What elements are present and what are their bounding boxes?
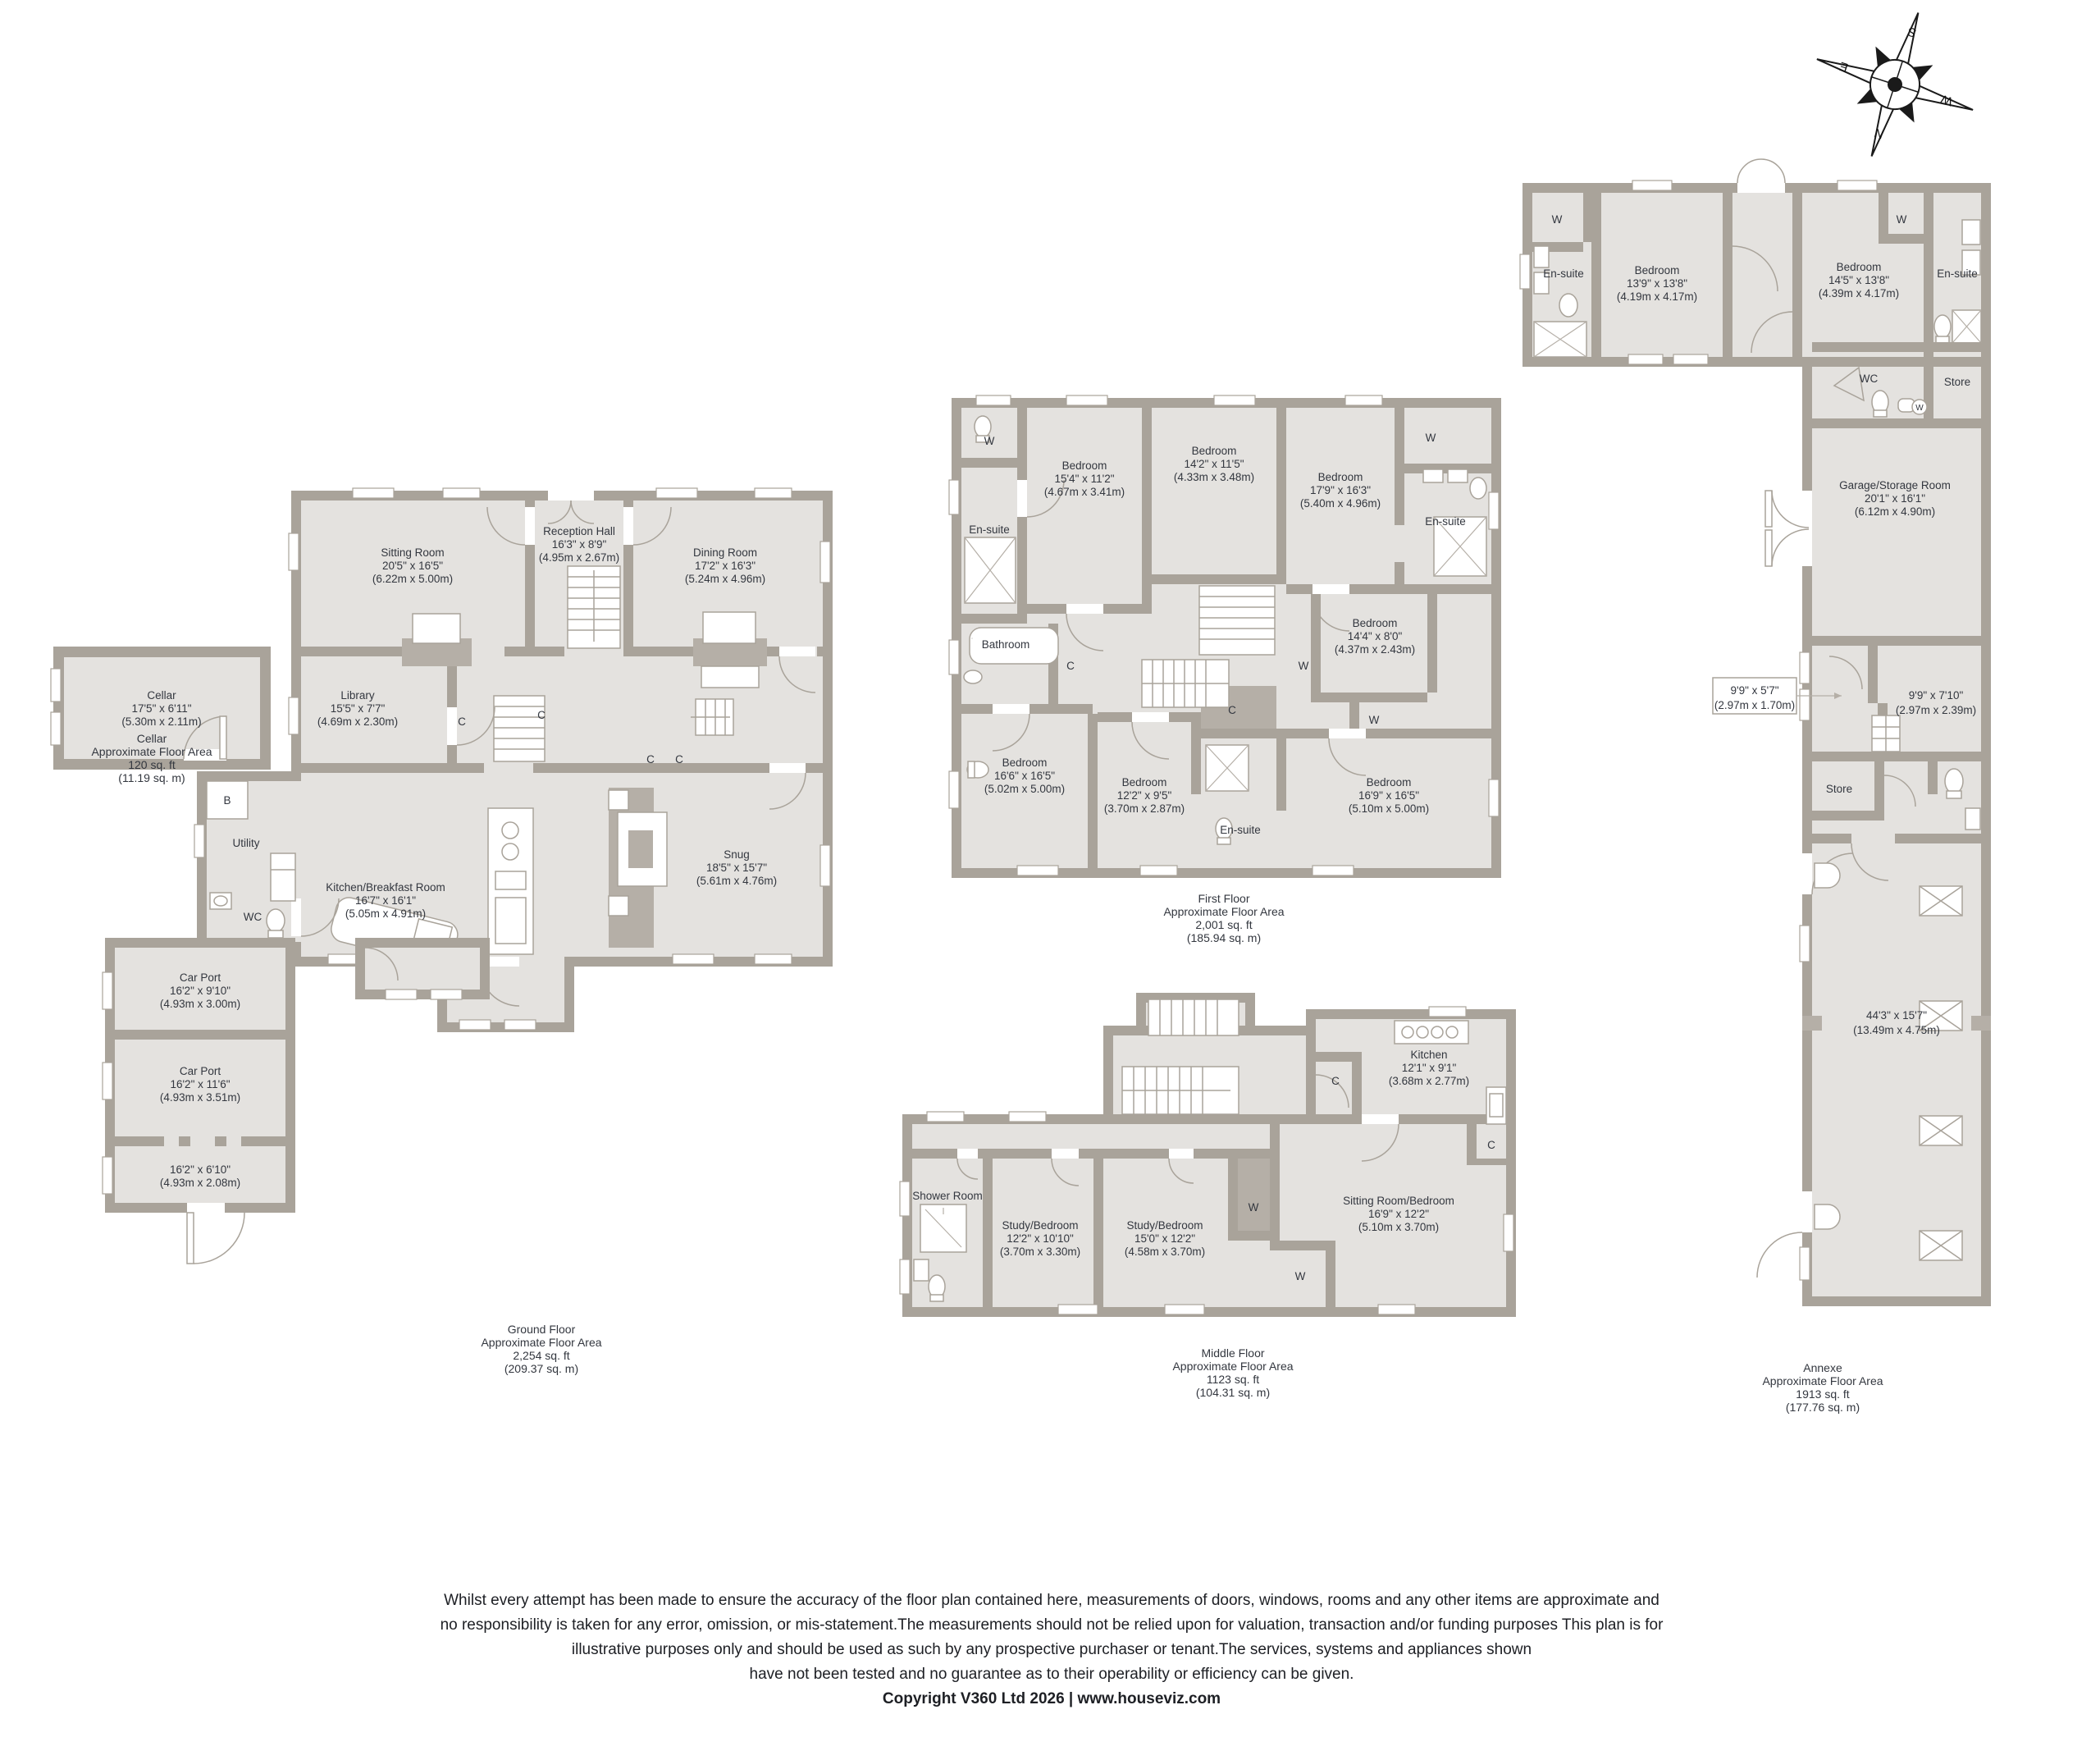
room-label-bedroom-4: Bedroom	[1353, 617, 1398, 629]
marker-cupboard: C	[1331, 1075, 1340, 1087]
annexe-caption-4: (177.76 sq. m)	[1786, 1401, 1860, 1414]
copyright-line: Copyright V360 Ltd 2026 | www.houseviz.c…	[883, 1690, 1221, 1707]
room-dim: 12'2" x 9'5"	[1117, 789, 1172, 802]
room-dim: (5.24m x 4.96m)	[685, 573, 765, 585]
room-dim: (5.10m x 5.00m)	[1349, 802, 1429, 815]
kitchen-units-icon	[488, 808, 533, 954]
room-dim-big-room: 44'3" x 15'7"	[1866, 1009, 1927, 1022]
room-dim: 18'5" x 15'7"	[706, 862, 767, 874]
first-caption-2: Approximate Floor Area	[1163, 905, 1284, 918]
room-dim: 20'1" x 16'1"	[1865, 492, 1925, 505]
first-floor-plan: W W W W C C En-suite En-suite Bathroom B…	[949, 395, 1501, 944]
room-dim: 14'4" x 8'0"	[1348, 630, 1403, 642]
room-label-garage: Garage/Storage Room	[1839, 479, 1951, 491]
sink-icon	[914, 1259, 929, 1281]
room-dim: (4.19m x 4.17m)	[1617, 290, 1697, 303]
hob-icon	[1395, 1021, 1468, 1044]
room-dim: (6.12m x 4.90m)	[1855, 505, 1935, 518]
marker-wardrobe: W	[1369, 714, 1380, 726]
stairs-icon	[1122, 1067, 1239, 1114]
stairs-icon	[494, 696, 545, 761]
room-dim: (4.67m x 3.41m)	[1044, 486, 1125, 498]
room-label-cellar: Cellar	[147, 689, 176, 702]
room-dim: 16'9" x 16'5"	[1358, 789, 1419, 802]
cellar-caption-4: (11.19 sq. m)	[118, 771, 185, 784]
room-dim: 12'1" x 9'1"	[1402, 1062, 1457, 1074]
toilet-icon	[1559, 294, 1577, 317]
room-dim: 15'0" x 12'2"	[1134, 1232, 1195, 1245]
marker-cupboard: C	[1066, 660, 1075, 672]
room-label-bedroom-5: Bedroom	[1002, 757, 1048, 769]
room-dim: 14'2" x 11'5"	[1184, 458, 1244, 470]
cellar-caption-3: 120 sq. ft	[128, 758, 176, 771]
room-label-bedroom-7: Bedroom	[1367, 776, 1412, 789]
disclaimer-line-1: Whilst every attempt has been made to en…	[444, 1592, 1659, 1609]
cabinet-icon	[1965, 808, 1980, 830]
room-label-ensuite: En-suite	[969, 523, 1010, 536]
annexe-caption-1: Annexe	[1803, 1361, 1842, 1374]
room-label-bedroom-a: Bedroom	[1635, 264, 1680, 277]
marker-wardrobe: W	[1552, 213, 1563, 226]
room-label-ensuite: En-suite	[1937, 267, 1978, 280]
room-dim: (13.49m x 4.75m)	[1853, 1024, 1940, 1036]
room-label-ensuite: En-suite	[1543, 267, 1584, 280]
room-dim: (5.05m x 4.91m)	[345, 907, 426, 920]
room-dim: (6.22m x 5.00m)	[372, 573, 453, 585]
stairs-icon	[1148, 999, 1239, 1035]
compass-south: S	[1906, 24, 1918, 39]
toilet-icon	[1934, 315, 1951, 343]
room-label-dining-room: Dining Room	[693, 546, 757, 559]
room-label-bedroom-b: Bedroom	[1837, 261, 1882, 273]
room-dim: (5.10m x 3.70m)	[1358, 1221, 1439, 1233]
room-dim: (4.33m x 3.48m)	[1174, 471, 1254, 483]
room-label-bedroom-6: Bedroom	[1122, 776, 1167, 789]
stairs-icon	[568, 566, 620, 648]
marker-wardrobe: W	[1295, 1270, 1306, 1282]
room-label-kitchen: Kitchen/Breakfast Room	[326, 881, 445, 894]
stairs-icon	[1142, 660, 1229, 707]
cellar-plan: Cellar 17'5" x 6'11" (5.30m x 2.11m) Cel…	[51, 647, 271, 784]
disclaimer-text: Whilst every attempt has been made to en…	[441, 1592, 1664, 1707]
appliance-icon	[271, 853, 295, 901]
room-dim: 16'7" x 16'1"	[355, 894, 416, 907]
room-dim: 13'9" x 13'8"	[1627, 277, 1687, 290]
room-label-library: Library	[340, 689, 375, 702]
marker-wardrobe: W	[1299, 660, 1309, 672]
room-dim: 16'2" x 11'6"	[170, 1078, 230, 1090]
compass-rose-icon: N S E W	[1793, 0, 1996, 181]
marker-boiler: B	[223, 794, 231, 807]
ground-caption-3: 2,254 sq. ft	[513, 1349, 569, 1362]
room-label-snug: Snug	[724, 848, 750, 861]
stairs-icon	[1199, 586, 1275, 655]
room-label-store: Store	[1944, 376, 1970, 388]
ground-caption-2: Approximate Floor Area	[481, 1336, 601, 1349]
room-dim: 15'5" x 7'7"	[331, 702, 386, 715]
ground-caption-1: Ground Floor	[508, 1323, 576, 1336]
room-dim: (3.68m x 2.77m)	[1389, 1075, 1469, 1087]
stairs-icon	[1872, 715, 1900, 752]
annexe-caption-3: 1913 sq. ft	[1796, 1387, 1849, 1401]
room-dim: 17'9" x 16'3"	[1310, 484, 1371, 496]
room-label-ensuite: En-suite	[1425, 515, 1466, 528]
room-label-car-port-1: Car Port	[180, 971, 221, 984]
marker-cupboard: C	[458, 715, 466, 728]
shower-icon	[920, 1204, 966, 1252]
room-label-bedroom-2: Bedroom	[1192, 445, 1237, 457]
door-arc	[1761, 159, 1785, 183]
room-dim: 16'3" x 8'9"	[552, 538, 607, 551]
shower-icon	[1952, 310, 1981, 343]
room-dim: 16'9" x 12'2"	[1368, 1208, 1429, 1220]
shower-icon	[1206, 745, 1249, 791]
room-dim: (4.39m x 4.17m)	[1819, 287, 1899, 299]
room-dim: (4.93m x 3.51m)	[160, 1091, 240, 1104]
room-dim: 16'2" x 9'10"	[170, 985, 231, 997]
first-caption-3: 2,001 sq. ft	[1195, 918, 1252, 931]
room-label-ensuite: En-suite	[1220, 824, 1261, 836]
marker-cupboard: C	[675, 753, 683, 766]
first-caption-1: First Floor	[1198, 892, 1250, 905]
annexe-caption-2: Approximate Floor Area	[1762, 1374, 1883, 1387]
toilet-icon	[967, 761, 988, 778]
sink-icon	[210, 893, 231, 909]
room-dim-small-room: 9'9" x 7'10"	[1909, 689, 1964, 702]
room-label-shower-room: Shower Room	[912, 1190, 983, 1202]
room-dim: 17'2" x 16'3"	[695, 560, 756, 572]
disclaimer-line-4: have not been tested and no guarantee as…	[750, 1666, 1354, 1683]
room-dim: 20'5" x 16'5"	[382, 560, 443, 572]
toilet-icon	[929, 1275, 945, 1301]
shower-icon	[965, 537, 1016, 603]
room-dim: (5.40m x 4.96m)	[1300, 497, 1381, 510]
toilet-icon	[1470, 478, 1486, 499]
toilet-icon	[267, 909, 285, 938]
room-dim-car-store: 16'2" x 6'10"	[170, 1163, 231, 1176]
middle-floor-plan: C C W W Kitchen 12'1" x 9'1" (3.68m x 2.…	[900, 993, 1516, 1399]
room-label-bedroom-3: Bedroom	[1318, 471, 1363, 483]
toilet-icon	[1945, 769, 1963, 798]
room-label-study-1: Study/Bedroom	[1002, 1219, 1078, 1232]
disclaimer-line-2: no responsibility is taken for any error…	[441, 1616, 1664, 1634]
room-label-kitchen-middle: Kitchen	[1410, 1049, 1447, 1061]
floorplan-drawing: Cellar 17'5" x 6'11" (5.30m x 2.11m) Cel…	[0, 0, 2100, 1737]
room-dim: 16'6" x 16'5"	[994, 770, 1055, 782]
room-dim: (4.93m x 2.08m)	[160, 1177, 240, 1189]
room-label-utility: Utility	[233, 837, 260, 849]
room-dim: (3.70m x 3.30m)	[1000, 1246, 1080, 1258]
middle-caption-2: Approximate Floor Area	[1172, 1360, 1293, 1373]
floorplan-page: Cellar 17'5" x 6'11" (5.30m x 2.11m) Cel…	[0, 0, 2100, 1737]
first-caption-4: (185.94 sq. m)	[1187, 931, 1261, 944]
room-dim: (5.61m x 4.76m)	[696, 875, 777, 887]
ground-floor-plan: B C C C C Sitting Room 20'5" x 16'5" (6.…	[103, 488, 833, 1375]
marker-cupboard: C	[1487, 1139, 1495, 1151]
door-arc	[1757, 1232, 1802, 1278]
ground-caption-4: (209.37 sq. m)	[504, 1362, 578, 1375]
door-arc	[1737, 159, 1761, 183]
marker-wardrobe: W	[1426, 432, 1436, 444]
room-label-wc: WC	[244, 911, 262, 923]
room-label-sitting-bedroom: Sitting Room/Bedroom	[1343, 1195, 1454, 1207]
disclaimer-line-3: illustrative purposes only and should be…	[572, 1641, 1532, 1658]
middle-caption-1: Middle Floor	[1201, 1346, 1264, 1360]
room-dim: (4.95m x 2.67m)	[539, 551, 619, 564]
room-label-wc-annexe: WC	[1860, 373, 1879, 385]
annexe-plan: 9'9" x 5'7" (2.97m x 1.70m)	[1520, 159, 1991, 1414]
room-dim: (4.93m x 3.00m)	[160, 998, 240, 1010]
room-label-bedroom-1: Bedroom	[1062, 459, 1107, 472]
stairs-icon	[691, 699, 733, 735]
marker-cupboard: C	[646, 753, 655, 766]
room-label-study-2: Study/Bedroom	[1126, 1219, 1203, 1232]
compass-north: N	[1873, 126, 1886, 142]
marker-wardrobe: W	[1249, 1201, 1259, 1214]
marker-cupboard: C	[537, 709, 546, 721]
shower-icon	[1534, 322, 1586, 357]
cellar-caption-2: Approximate Floor Area	[91, 745, 212, 758]
room-label-sitting-room: Sitting Room	[381, 546, 444, 559]
cellar-caption-1: Cellar	[137, 732, 167, 745]
room-dim: 14'5" x 13'8"	[1828, 274, 1889, 286]
middle-caption-3: 1123 sq. ft	[1207, 1373, 1259, 1386]
room-dim: (4.37m x 2.43m)	[1335, 643, 1415, 656]
toilet-icon	[1872, 391, 1888, 417]
room-label-store-2: Store	[1826, 783, 1852, 795]
room-dim-cellar-imperial: 17'5" x 6'11"	[131, 702, 191, 715]
room-dim: (4.58m x 3.70m)	[1125, 1246, 1205, 1258]
room-dim: 15'4" x 11'2"	[1054, 473, 1114, 485]
room-label-reception-hall: Reception Hall	[543, 525, 615, 537]
door-arc	[194, 1213, 244, 1264]
room-dim-cellar-metric: (5.30m x 2.11m)	[121, 715, 201, 728]
middle-caption-4: (104.31 sq. m)	[1196, 1386, 1270, 1399]
hall-dim-imperial: 9'9" x 5'7"	[1730, 684, 1778, 697]
marker-wardrobe: W	[1897, 213, 1907, 226]
room-label-bathroom: Bathroom	[982, 638, 1030, 651]
room-dim: (4.69m x 2.30m)	[317, 715, 398, 728]
room-dim: (3.70m x 2.87m)	[1104, 802, 1185, 815]
marker-wardrobe: W	[1915, 404, 1924, 413]
marker-cupboard: C	[1228, 704, 1236, 716]
marker-wardrobe: W	[984, 435, 995, 447]
sink-icon	[1486, 1087, 1506, 1124]
room-dim: 12'2" x 10'10"	[1007, 1232, 1074, 1245]
room-label-car-port-2: Car Port	[180, 1065, 221, 1077]
hall-dim-metric: (2.97m x 1.70m)	[1714, 699, 1795, 711]
room-dim: (5.02m x 5.00m)	[984, 783, 1065, 795]
room-dim: (2.97m x 2.39m)	[1896, 704, 1976, 716]
